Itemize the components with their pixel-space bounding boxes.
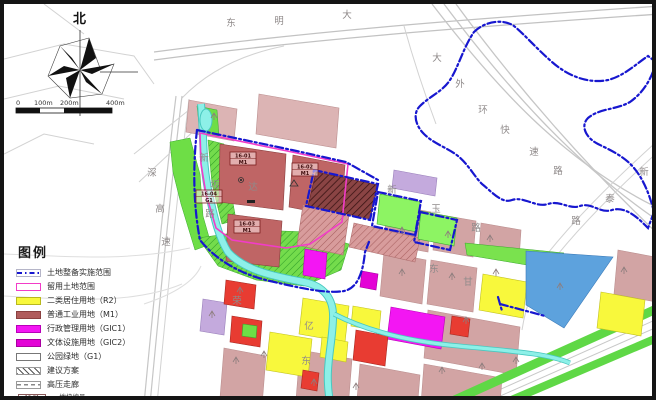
- corridor-swatch: [16, 381, 41, 389]
- r2-swatch: [16, 297, 41, 305]
- g1-swatch: [16, 353, 41, 361]
- road-label-char: 玉: [431, 204, 441, 215]
- road-label-char: 路: [205, 208, 215, 220]
- gic1-swatch: [16, 325, 41, 333]
- svg-text:M1: M1: [243, 228, 252, 234]
- road-label-char: 明: [274, 16, 284, 27]
- road-label-char: 路: [553, 165, 563, 177]
- legend-item-gic2: 文体设施用地（GIC2）: [16, 337, 168, 348]
- svg-text:16-02: 16-02: [297, 164, 314, 170]
- legend-item-boundary: 土地整备实施范围: [16, 267, 168, 278]
- plot-label-16-03: 16-03M1: [234, 220, 260, 234]
- map-frame: 东明大大外环快速路新泰路深高速新坂路达新玉路东荣亿东甘 16-01M116-02…: [0, 0, 656, 400]
- scale-tick-0: 0: [16, 99, 20, 107]
- legend: 图例 土地整备实施范围 留用土地范围 二类居住用地（R2） 普通工业用地（M1）…: [16, 242, 168, 400]
- road-label-char: 外: [455, 78, 465, 90]
- road-label-char: 东: [301, 355, 311, 367]
- road-label-char: 新: [387, 184, 397, 196]
- gic2-swatch: [16, 339, 41, 347]
- road-label-char: 大: [432, 52, 442, 64]
- plot-label-16-01: 16-01M1: [230, 152, 256, 166]
- road-label-char: 甘: [463, 276, 473, 288]
- svg-text:16-04: 16-04: [201, 191, 218, 197]
- legend-item-retained: 留用土地范围: [16, 281, 168, 292]
- boundary-swatch: [16, 269, 41, 277]
- svg-text:M1: M1: [239, 160, 248, 166]
- road-label-char: 路: [571, 215, 581, 227]
- legend-item-m1: 普通工业用地（M1）: [16, 309, 168, 320]
- legend-item-g1: 公园绿地（G1）: [16, 351, 168, 362]
- road-label-char: 环: [478, 105, 488, 116]
- legend-title: 图例: [18, 242, 168, 261]
- road-label-char: 新: [639, 166, 649, 178]
- svg-text:M1: M1: [301, 171, 310, 177]
- road-label-char: 新: [199, 152, 209, 164]
- road-label-char: 坂: [210, 180, 220, 191]
- proposal-swatch: [16, 367, 41, 375]
- road-label-char: 达: [248, 181, 258, 193]
- road-label-char: 路: [471, 222, 481, 234]
- road-label-char: 大: [342, 9, 352, 21]
- legend-item-proposal: 建议方案: [16, 365, 168, 376]
- retained-swatch: [16, 283, 41, 291]
- plot-label-sample: 16-01 M1: [18, 394, 46, 400]
- svg-text:G1: G1: [205, 198, 213, 204]
- legend-plot-note: 16-01 M1 地块编号 用地性质代码: [18, 393, 168, 400]
- road-label-char: 亿: [304, 320, 314, 332]
- road-label-char: 速: [529, 147, 539, 158]
- plot-note-fraction: 地块编号 用地性质代码: [53, 393, 92, 400]
- road-label-char: 泰: [605, 193, 615, 205]
- legend-item-r2: 二类居住用地（R2）: [16, 295, 168, 306]
- road-label-char: 深: [147, 168, 157, 179]
- svg-text:16-01: 16-01: [235, 153, 252, 159]
- scale-tick-200: 200m: [60, 99, 79, 107]
- legend-item-corridor: 高压走廊: [16, 379, 168, 390]
- north-label: 北: [73, 12, 86, 27]
- scale-tick-100: 100m: [34, 99, 53, 107]
- scale-bar: 0 100m 200m 400m: [16, 99, 125, 113]
- m1-swatch: [16, 311, 41, 319]
- road-label-char: 高: [155, 203, 165, 215]
- road-label-char: 快: [500, 124, 510, 136]
- plot-label-16-02: 16-02M1: [292, 163, 318, 177]
- road-label-char: 荣: [232, 295, 242, 307]
- scale-tick-400: 400m: [106, 99, 125, 107]
- plot-label-16-04: 16-04G1: [196, 190, 222, 204]
- svg-text:16-03: 16-03: [239, 221, 256, 227]
- road-label-char: 东: [226, 17, 236, 29]
- parcel-symbol: [493, 269, 499, 276]
- legend-item-gic1: 行政管理用地（GIC1）: [16, 323, 168, 334]
- road-label-char: 东: [429, 263, 439, 275]
